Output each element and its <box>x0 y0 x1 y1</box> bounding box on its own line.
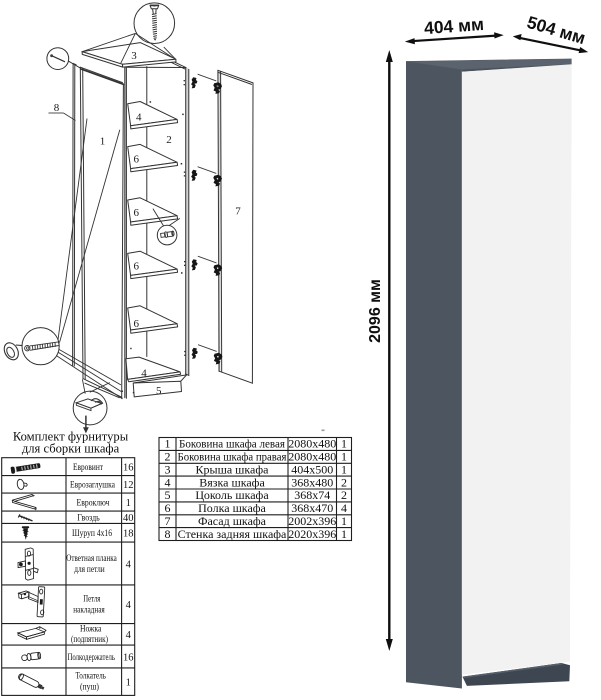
svg-text:5: 5 <box>165 488 171 502</box>
svg-text:1: 1 <box>341 527 347 541</box>
svg-text:2096 мм: 2096 мм <box>367 279 384 343</box>
svg-text:4: 4 <box>126 600 132 611</box>
svg-text:1: 1 <box>341 437 347 451</box>
svg-text:1: 1 <box>165 437 171 451</box>
svg-text:Фасад шкафа: Фасад шкафа <box>198 514 267 528</box>
svg-text:1: 1 <box>341 462 347 476</box>
svg-text:(подпятник): (подпятник) <box>71 634 108 645</box>
svg-text:2020x396: 2020x396 <box>288 527 336 541</box>
svg-text:Вязка шкафа: Вязка шкафа <box>199 475 265 489</box>
svg-text:7: 7 <box>165 514 171 528</box>
svg-text:2: 2 <box>341 488 347 502</box>
svg-text:16: 16 <box>123 652 134 663</box>
svg-text:3: 3 <box>131 50 137 62</box>
svg-text:Ножка: Ножка <box>80 624 102 635</box>
svg-text:Толкатель: Толкатель <box>75 671 106 682</box>
svg-text:для сборки шкафа: для сборки шкафа <box>22 442 120 456</box>
svg-text:Стенка задняя шкафа: Стенка задняя шкафа <box>178 527 287 541</box>
svg-text:5: 5 <box>156 385 162 397</box>
svg-text:2: 2 <box>341 475 347 489</box>
svg-text:1: 1 <box>126 498 131 509</box>
svg-text:Евровинт: Евровинт <box>73 462 104 473</box>
svg-text:40: 40 <box>123 513 134 524</box>
svg-text:1: 1 <box>126 678 131 689</box>
svg-text:4: 4 <box>126 559 132 570</box>
svg-text:368x480: 368x480 <box>291 475 333 489</box>
svg-text:16: 16 <box>123 462 134 473</box>
svg-text:404 мм: 404 мм <box>423 14 484 38</box>
svg-text:1: 1 <box>100 136 106 148</box>
svg-text:Полкодержатель: Полкодержатель <box>67 652 115 663</box>
svg-text:Цоколь шкафа: Цоколь шкафа <box>195 488 269 502</box>
svg-text:6: 6 <box>134 318 140 330</box>
svg-text:7: 7 <box>235 206 241 218</box>
svg-text:Шуруп 4x16: Шуруп 4x16 <box>72 528 112 539</box>
svg-text:для петли: для петли <box>74 564 105 575</box>
svg-text:Гвоздь: Гвоздь <box>77 513 100 524</box>
svg-text:4: 4 <box>165 475 171 489</box>
svg-text:накладная: накладная <box>73 605 105 616</box>
svg-text:Боковина шкафа левая: Боковина шкафа левая <box>179 437 285 451</box>
svg-text:Еврозаглушка: Еврозаглушка <box>70 480 116 491</box>
svg-text:6: 6 <box>134 260 140 272</box>
svg-text:4: 4 <box>126 630 132 641</box>
svg-text:Петля: Петля <box>83 594 100 605</box>
svg-text:4: 4 <box>141 367 147 379</box>
svg-text:368x74: 368x74 <box>294 488 330 502</box>
svg-text:Ответная планка: Ответная планка <box>66 553 117 564</box>
svg-text:1: 1 <box>341 514 347 528</box>
svg-text:Крыша шкафа: Крыша шкафа <box>196 462 270 476</box>
svg-text:8: 8 <box>165 527 171 541</box>
svg-text:2002x396: 2002x396 <box>288 514 336 528</box>
svg-text:6: 6 <box>134 207 140 219</box>
svg-text:6: 6 <box>134 154 140 166</box>
svg-text:4: 4 <box>136 112 142 124</box>
svg-text:8: 8 <box>54 102 60 114</box>
svg-text:18: 18 <box>123 529 134 540</box>
svg-text:3: 3 <box>165 462 171 476</box>
svg-text:2080x480: 2080x480 <box>288 437 336 451</box>
svg-text:2: 2 <box>166 134 172 146</box>
svg-text:12: 12 <box>123 480 134 491</box>
svg-text:(пуш): (пуш) <box>80 682 99 693</box>
svg-text:404x500: 404x500 <box>291 462 333 476</box>
svg-text:Евроключ: Евроключ <box>77 498 110 509</box>
